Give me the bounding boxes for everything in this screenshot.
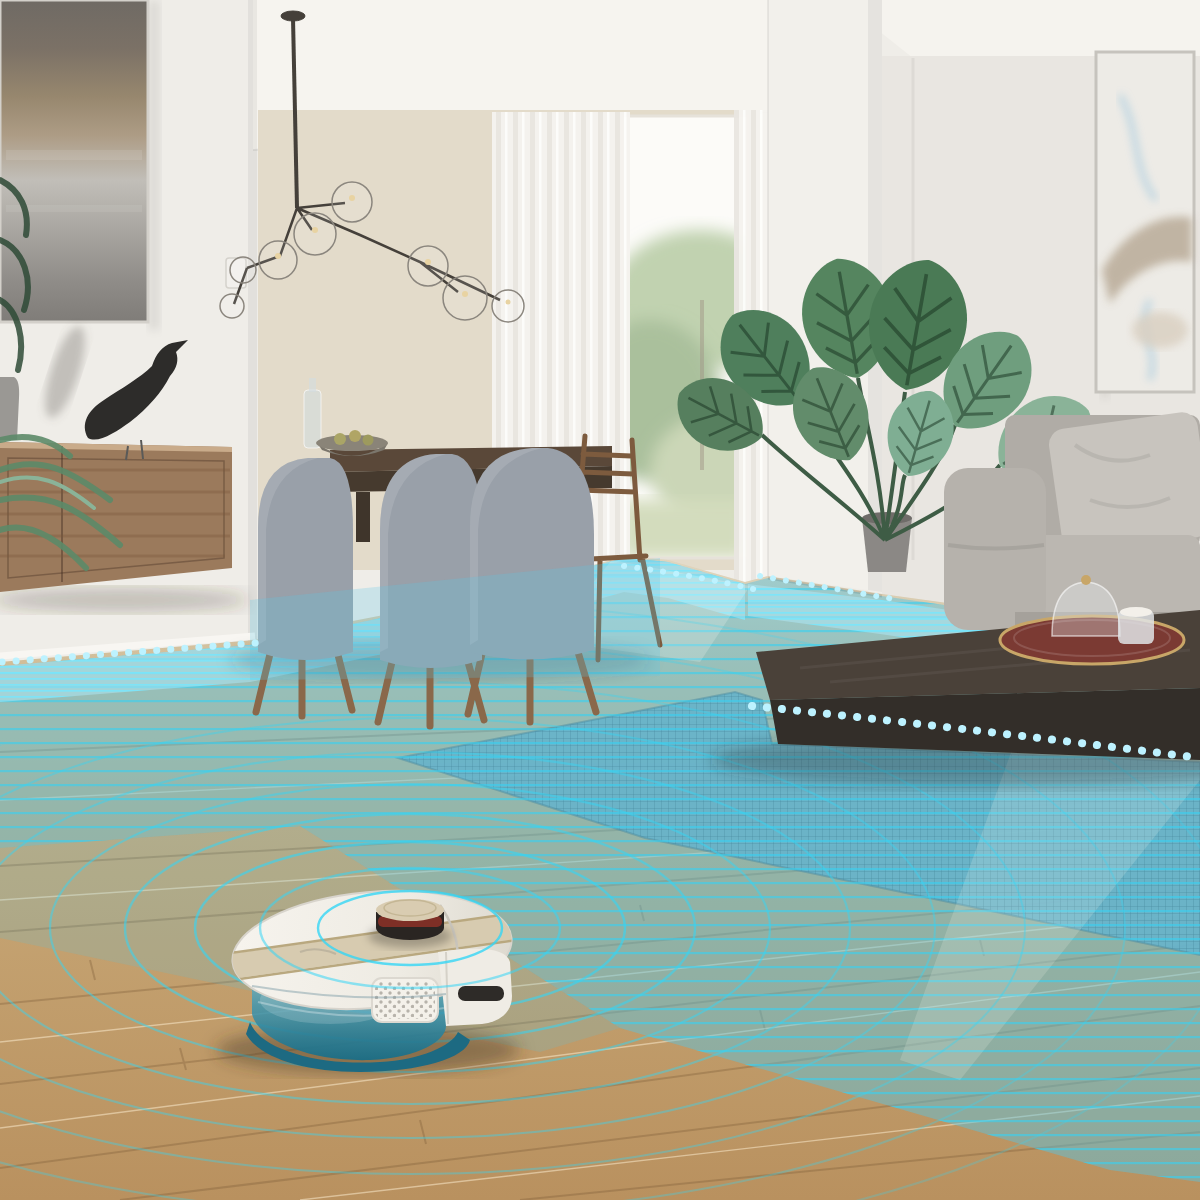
painting-streak: [6, 150, 142, 160]
bumper-sensor: [458, 986, 504, 1001]
fruit: [363, 435, 374, 446]
glass-globe: [259, 241, 297, 279]
abstract-painting: [0, 0, 148, 322]
glass-globe: [220, 294, 244, 318]
glass-globe: [332, 182, 372, 222]
glass-globe: [294, 213, 336, 255]
throw-pillow: [1047, 410, 1200, 556]
lidar-turret: [368, 899, 452, 948]
scene-canvas: [0, 0, 1200, 1200]
credenza-shadow: [0, 588, 250, 612]
table-leg: [356, 492, 370, 542]
painting-shadow: [148, 0, 160, 330]
bottle-neck: [309, 378, 316, 392]
glass-globe: [408, 246, 448, 286]
art-beige-patch: [1132, 312, 1188, 348]
glass-globe: [443, 276, 487, 320]
glass-globe: [230, 257, 256, 283]
fruit: [334, 433, 346, 445]
dustbin-grille: [372, 978, 438, 1022]
turret-cap: [376, 899, 444, 921]
left-wall-corner: [248, 0, 257, 645]
wall-art: [1096, 52, 1194, 392]
living-room-scene: [0, 0, 1200, 1200]
cloche-knob: [1081, 575, 1091, 585]
fruit: [349, 430, 361, 442]
candle-wax: [1120, 607, 1152, 617]
glass-bottle: [304, 390, 321, 448]
glass-globe: [492, 290, 524, 322]
ceramic-vase: [0, 377, 19, 440]
